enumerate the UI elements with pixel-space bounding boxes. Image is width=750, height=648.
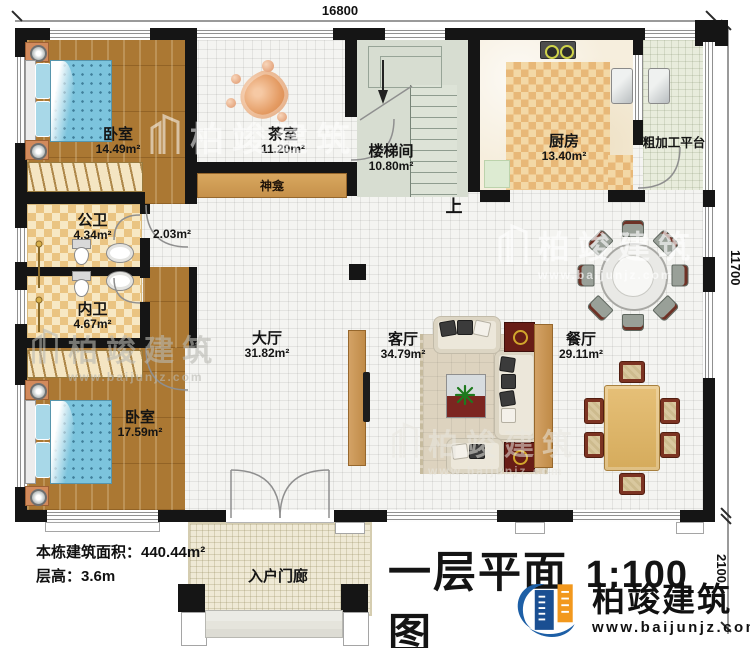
stair-up-label: 上 xyxy=(440,197,468,217)
shrine-label: 神龛 xyxy=(260,177,284,194)
window-platform-top xyxy=(645,28,695,40)
porch-steps xyxy=(205,610,343,638)
rect-dining-table xyxy=(604,385,660,471)
brand-logo: 柏竣建筑 www.baijunjz.com xyxy=(512,578,750,640)
sill-bedroom2 xyxy=(45,522,160,532)
stair-landing-outline xyxy=(380,56,442,88)
chair-seat xyxy=(588,402,600,420)
chair-seat xyxy=(664,436,676,454)
tearoom-art-dot xyxy=(226,98,236,108)
brand-name: 柏竣建筑 xyxy=(592,583,750,616)
room-name: 上 xyxy=(440,197,468,217)
lamp-icon xyxy=(30,383,47,400)
tearoom-art-dot xyxy=(277,112,287,122)
room-name: 茶室 xyxy=(238,126,328,143)
room-name: 公卫 xyxy=(55,212,130,229)
pillow xyxy=(35,63,51,99)
kitchen-mat xyxy=(506,62,610,190)
room-area: 13.40m² xyxy=(519,150,609,164)
floor-plan-page: 16800 11700 2100 xyxy=(0,0,750,648)
dining-chair xyxy=(622,314,644,331)
sofa-pillow xyxy=(469,444,485,459)
pillow xyxy=(35,442,51,478)
wall-bedroom2-top xyxy=(27,338,145,348)
room-label-living: 客厅 34.79m² xyxy=(358,331,448,362)
bed-sheet xyxy=(51,61,75,141)
wall-kitchen-left xyxy=(468,28,480,192)
room-area: 29.11m² xyxy=(536,348,626,362)
kitchen-mat-ext xyxy=(608,155,633,190)
room-name: 内卫 xyxy=(55,301,130,318)
wall-bedroom1-right xyxy=(185,40,197,204)
room-name: 客厅 xyxy=(358,331,448,348)
room-name: 粗加工平台 xyxy=(642,136,706,150)
burner-icon xyxy=(560,45,574,59)
room-label-tearoom: 茶室 11.20m² xyxy=(238,126,328,157)
room-name: 大厅 xyxy=(222,330,312,347)
room-area: 4.67m² xyxy=(55,318,130,332)
brand-website: www.baijunjz.com xyxy=(592,619,750,636)
porch-column-left xyxy=(178,584,205,612)
dining-chair xyxy=(622,220,644,237)
tearoom-art-dot xyxy=(231,74,241,84)
coffee-table xyxy=(446,374,486,418)
dining-chair xyxy=(584,432,604,458)
tv xyxy=(363,372,370,422)
room-label-publicbath: 公卫 4.34m² xyxy=(55,212,130,243)
wall-tearoom-right xyxy=(345,40,357,117)
window-dining-right-2 xyxy=(703,292,715,378)
dining-chair xyxy=(578,265,595,287)
nightstand xyxy=(25,486,49,506)
nightstand xyxy=(25,42,49,62)
stair-treads xyxy=(410,85,457,197)
bed-sheet xyxy=(51,401,75,483)
lamp-icon xyxy=(30,143,47,160)
wall-corridor-right xyxy=(189,267,197,348)
nightstand xyxy=(25,380,49,400)
porch-column-right xyxy=(341,584,368,612)
wardrobe xyxy=(27,162,143,192)
stove xyxy=(540,41,576,59)
window-stair-top xyxy=(385,28,445,40)
dining-chair xyxy=(619,473,645,495)
room-label-dining: 餐厅 29.11m² xyxy=(536,331,626,362)
kitchen-sink xyxy=(611,68,633,104)
room-area: 2.03m² xyxy=(146,228,198,242)
nightstand xyxy=(25,140,49,160)
dining-chair xyxy=(660,398,680,424)
room-label-hall: 大厅 31.82m² xyxy=(222,330,312,361)
room-name: 餐厅 xyxy=(536,331,626,348)
platform-sink xyxy=(648,68,670,104)
room-label-bedroom2: 卧室 17.59m² xyxy=(95,409,185,440)
dining-chair xyxy=(660,432,680,458)
porch-base-left xyxy=(181,612,207,646)
emblem-icon xyxy=(513,330,528,345)
red-cabinet xyxy=(504,442,535,472)
pilaster-1 xyxy=(335,522,365,534)
round-table-top xyxy=(612,255,654,297)
window-dining-right-1 xyxy=(703,207,715,257)
room-label-privatebath: 内卫 4.67m² xyxy=(55,301,130,332)
porch-base-right xyxy=(343,612,369,646)
window-kitchen-platform xyxy=(633,55,643,120)
room-label-stairwell: 楼梯间 10.80m² xyxy=(346,143,436,174)
room-name: 厨房 xyxy=(519,133,609,150)
room-name: 卧室 xyxy=(73,126,163,143)
room-area: 10.80m² xyxy=(346,160,436,174)
pilaster-3 xyxy=(676,522,704,534)
kitchen-green-mat xyxy=(484,160,510,188)
pillow xyxy=(35,101,51,137)
window-publicbath-left xyxy=(15,228,27,262)
bathroom-sink xyxy=(106,271,134,291)
room-area: 14.49m² xyxy=(73,143,163,157)
sofa-pillow xyxy=(473,320,492,338)
pilaster-2 xyxy=(515,522,545,534)
wardrobe xyxy=(27,350,143,378)
brand-logo-icon xyxy=(512,578,586,640)
wall-bedroom1-bottom xyxy=(27,192,145,204)
wall-kitchen-bottom-a xyxy=(480,190,510,202)
wall-kitchen-bottom-b xyxy=(608,190,645,202)
room-label-porch: 入户门廊 xyxy=(223,568,333,585)
sofa-pillow xyxy=(499,390,516,407)
wall-bath-right-a xyxy=(140,204,150,214)
dimension-line-top xyxy=(15,20,727,22)
wall-kitchen-platform-a xyxy=(633,40,643,55)
dining-chair xyxy=(672,265,689,287)
window-platform-right xyxy=(703,42,715,190)
window-privatebath-left xyxy=(15,290,27,324)
room-label-bedroom1: 卧室 14.49m² xyxy=(73,126,163,157)
window-bedroom1-top xyxy=(50,28,150,40)
dining-chair xyxy=(584,398,604,424)
room-label-kitchen: 厨房 13.40m² xyxy=(519,133,609,164)
wall-tearoom-bottom xyxy=(197,162,357,173)
room-area: 4.34m² xyxy=(55,229,130,243)
room-area: 34.79m² xyxy=(358,348,448,362)
lamp-icon xyxy=(30,489,47,506)
note-total-area: 本栋建筑面积：440.44m² xyxy=(36,541,205,562)
platform-floor xyxy=(643,40,703,190)
red-cabinet xyxy=(504,322,535,352)
chair-seat xyxy=(623,477,641,491)
room-name: 入户门廊 xyxy=(223,568,333,585)
room-label-platform: 粗加工平台 xyxy=(642,136,706,150)
bathroom-sink xyxy=(106,243,134,263)
entry-opening xyxy=(226,510,334,523)
chair-seat xyxy=(623,365,641,379)
shrine-cabinet: 神龛 xyxy=(197,173,347,198)
chair-seat xyxy=(588,436,600,454)
dining-chair xyxy=(619,361,645,383)
sofa-pillow xyxy=(499,356,516,373)
room-name: 楼梯间 xyxy=(346,143,436,160)
dimension-right-11700: 11700 xyxy=(728,250,743,285)
tearoom-art-dot xyxy=(262,60,274,72)
burner-icon xyxy=(545,45,559,59)
wall-bath-right-b xyxy=(140,238,150,278)
window-dining-bottom xyxy=(573,510,680,522)
room-area: 11.20m² xyxy=(238,143,328,157)
chair-seat xyxy=(664,402,676,420)
room-area: 31.82m² xyxy=(222,347,312,361)
sofa-pillow xyxy=(501,374,516,389)
room-name: 卧室 xyxy=(95,409,185,426)
room-area: 17.59m² xyxy=(95,426,185,440)
emblem-icon xyxy=(513,450,528,465)
room-label-corridor: 2.03m² xyxy=(146,228,198,242)
window-bedroom2-bottom xyxy=(47,510,158,522)
hall-column xyxy=(349,264,366,280)
window-hall-bottom xyxy=(387,510,497,522)
dimension-top-16800: 16800 xyxy=(310,3,370,18)
note-floor-height: 层高：3.6m xyxy=(36,565,115,586)
pillow xyxy=(35,404,51,440)
sofa-pillow xyxy=(451,443,469,460)
window-tearoom-top xyxy=(197,28,333,40)
sofa-pillow xyxy=(457,320,473,335)
sofa-pillow xyxy=(501,408,516,423)
